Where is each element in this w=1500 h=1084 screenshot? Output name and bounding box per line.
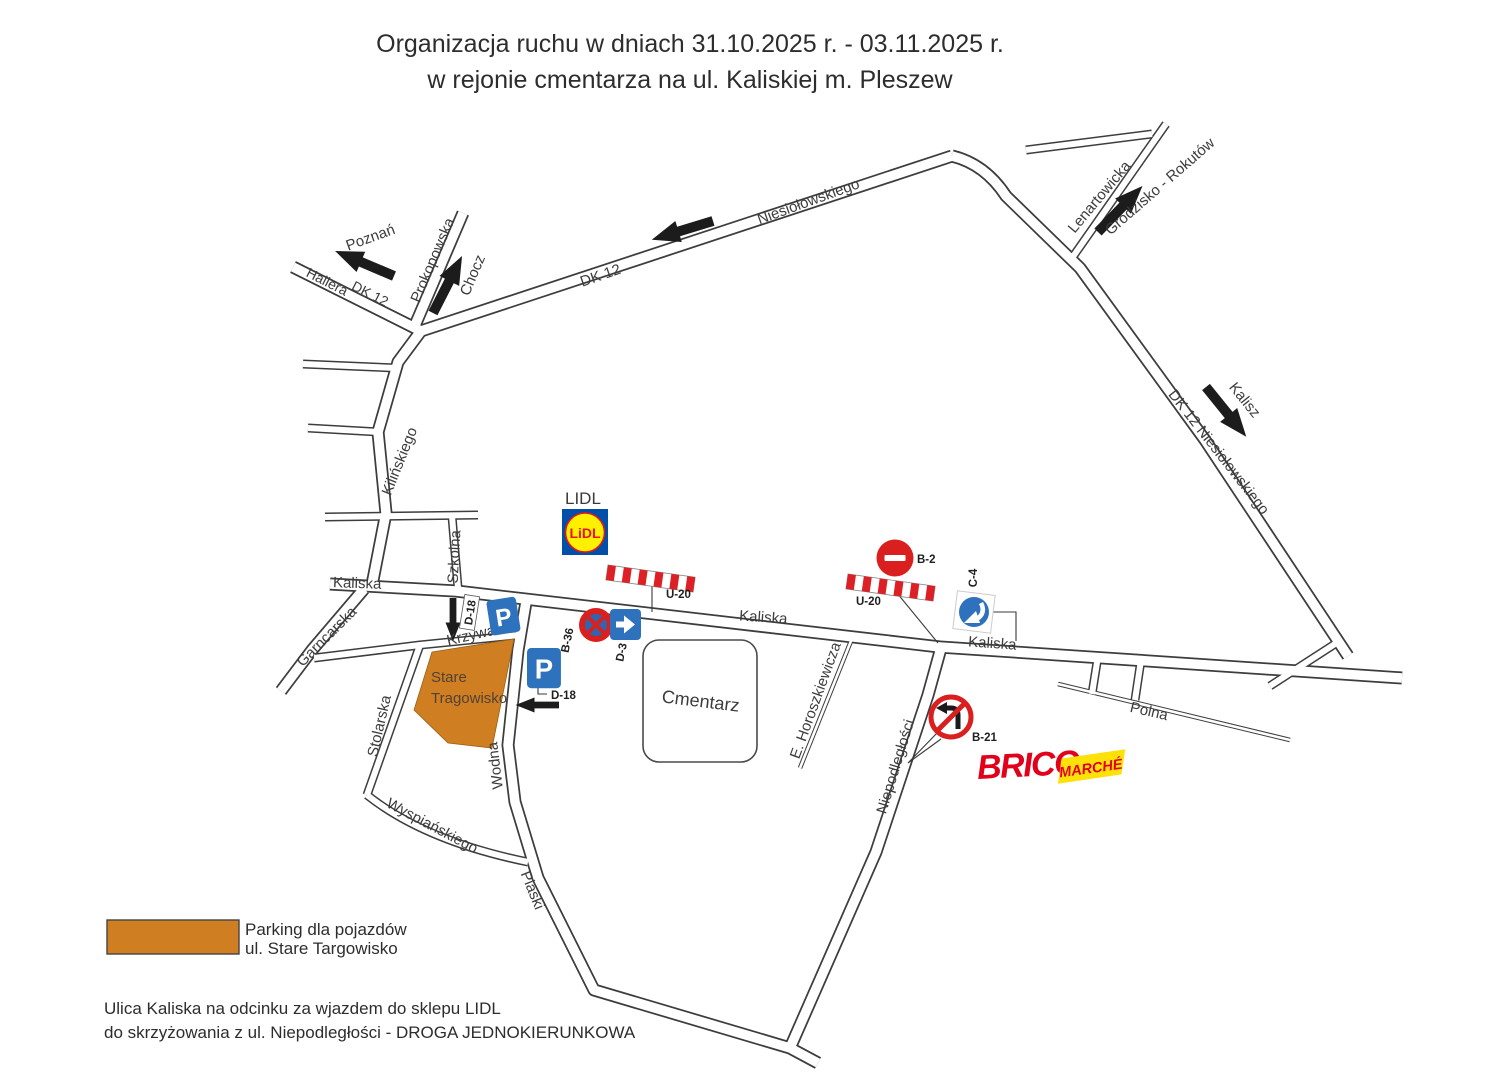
d3-label: D-3: [614, 642, 630, 663]
legend-swatch: [107, 920, 239, 954]
c4-label: C-4: [968, 568, 980, 587]
map-title: Organizacja ruchu w dniach 31.10.2025 r.…: [376, 30, 1004, 94]
traffic-map: P Organizacja ruchu w dniach 31.10.2025 …: [0, 0, 1500, 1084]
footnote-line2: do skrzyżowania z ul. Niepodległości - D…: [104, 1023, 636, 1042]
d18-lower-label: D-18: [551, 690, 577, 702]
street-label-horoszkiewicza: E. Horoszkiewicza: [787, 639, 845, 761]
road-surfaces: [281, 124, 1402, 1063]
b2-label: B-2: [917, 554, 936, 566]
road-polna: [1058, 684, 1290, 740]
street-label-kaliska-center: Kaliska: [739, 607, 789, 627]
market-label-line1: Stare: [431, 669, 467, 686]
b21-label: B-21: [972, 732, 998, 744]
road-dk12-northwest: [421, 156, 952, 331]
street-label-hallera: Hallera: [304, 264, 351, 298]
street-label-niesiolowskiego: Niesiołowskiego: [755, 175, 862, 228]
bricomarche-logo: BRICO MARCHÉ: [976, 741, 1127, 788]
road-top-sliver: [1026, 134, 1152, 150]
legend: Parking dla pojazdów ul. Stare Targowisk…: [107, 920, 407, 958]
no-left-turn-sign-b21-icon: [931, 697, 971, 737]
footnote: Ulica Kaliska na odcinku za wjazdem do s…: [104, 999, 636, 1042]
cemetery-area: Cmentarz: [643, 640, 757, 762]
parking-sign-d18-upper-icon: [486, 596, 521, 636]
direction-label-poznan: Poznań: [344, 221, 398, 254]
street-label-wyspianskiego: Wyspiańskiego: [384, 795, 481, 857]
legend-line1: Parking dla pojazdów: [245, 920, 407, 939]
street-label-kaliska-east: Kaliska: [968, 633, 1018, 653]
d18-upper-label: D-18: [463, 599, 479, 626]
road-side-stub-2: [308, 428, 379, 432]
road-dk12-east: [952, 156, 1348, 656]
lidl-logo-text: LiDL: [569, 525, 601, 541]
turn-left-sign-c4-icon: [953, 591, 995, 633]
road-side-stub-1: [303, 364, 396, 368]
market-label-line2: Tragowisko: [431, 690, 507, 707]
parking-sign-d18-lower-icon: [527, 648, 561, 688]
b36-label: B-36: [560, 627, 577, 654]
no-entry-sign-b2-icon: [877, 540, 914, 577]
u20-west-label: U-20: [666, 589, 691, 601]
page-subtitle: w rejonie cmentarza na ul. Kaliskiej m. …: [426, 66, 953, 94]
street-label-kaliska-west: Kaliska: [333, 574, 383, 593]
no-stopping-sign-b36-icon: [582, 611, 610, 639]
one-way-sign-d3-icon: [610, 609, 641, 640]
footnote-line1: Ulica Kaliska na odcinku za wjazdem do s…: [104, 999, 501, 1018]
lidl-caption: LIDL: [565, 489, 601, 508]
page-title: Organizacja ruchu w dniach 31.10.2025 r.…: [376, 30, 1004, 58]
parking-area-stare-targowisko: Stare Tragowisko: [414, 639, 514, 748]
legend-line2: ul. Stare Targowisko: [245, 939, 398, 958]
street-label-polna: Polna: [1128, 699, 1170, 724]
street-label-szkolna: Szkolna: [445, 529, 465, 584]
lidl-logo: LIDL LiDL: [562, 489, 608, 555]
u20-east-label: U-20: [856, 596, 881, 608]
